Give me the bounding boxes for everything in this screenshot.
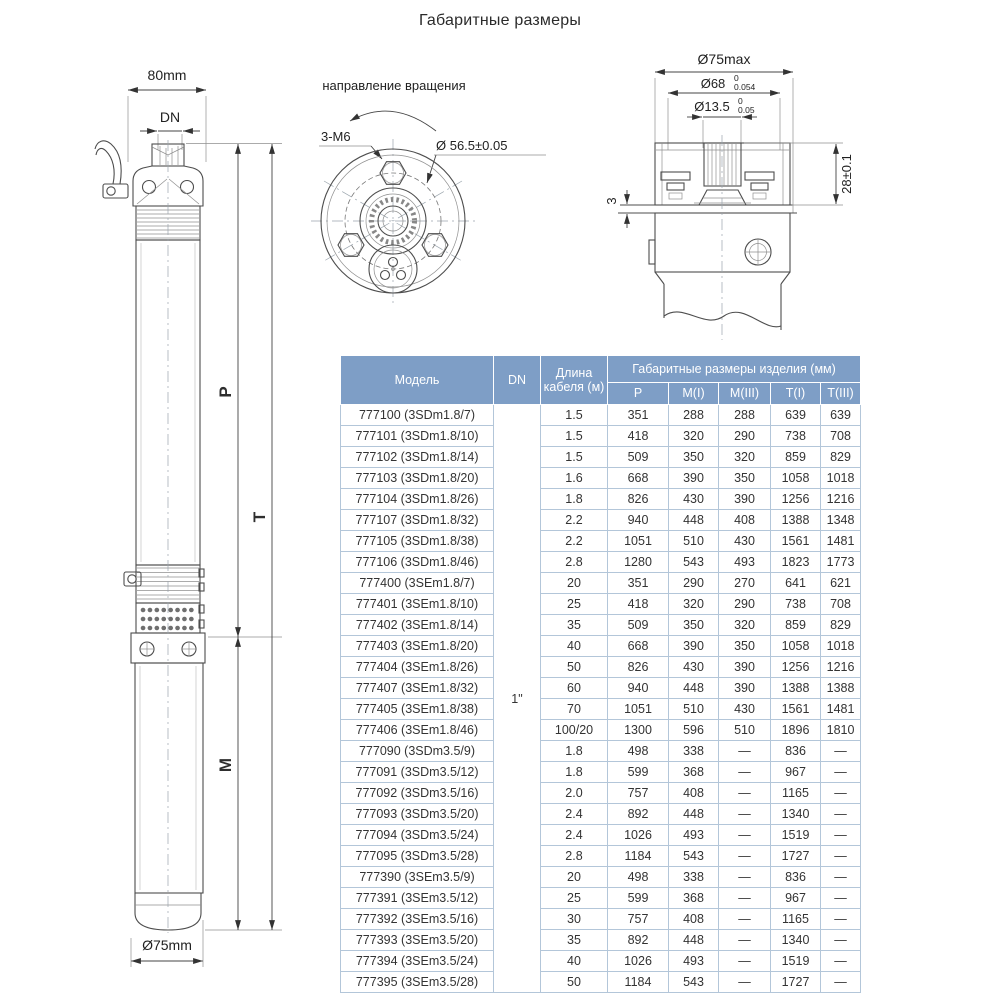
m1-cell: 493 [669, 951, 719, 972]
cable-length-cell: 2.2 [541, 510, 608, 531]
header-dn: DN [494, 356, 541, 405]
header-t1: T(I) [771, 383, 821, 405]
p-cell: 1051 [608, 531, 669, 552]
table-row: 777391 (3SEm3.5/12) 25 599 368 — 967 — [341, 888, 861, 909]
t3-cell: — [821, 888, 861, 909]
m3-cell: 390 [719, 678, 771, 699]
model-cell: 777406 (3SEm1.8/46) [341, 720, 494, 741]
table-row: 777094 (3SDm3.5/24) 2.4 1026 493 — 1519 … [341, 825, 861, 846]
t3-cell: 1018 [821, 636, 861, 657]
m1-cell: 430 [669, 489, 719, 510]
p-cell: 668 [608, 636, 669, 657]
cable-length-cell: 35 [541, 615, 608, 636]
dim-d68-tol-lower: 0.054 [734, 82, 756, 92]
m1-cell: 448 [669, 678, 719, 699]
p-cell: 509 [608, 447, 669, 468]
t1-cell: 859 [771, 447, 821, 468]
t1-cell: 1165 [771, 909, 821, 930]
t3-cell: 1388 [821, 678, 861, 699]
header-dimensions-group: Габаритные размеры изделия (мм) [608, 356, 861, 383]
m3-cell: 493 [719, 552, 771, 573]
t1-cell: 1058 [771, 468, 821, 489]
dimensions-table: Модель DN Длина кабеля (м) Габаритные ра… [340, 355, 861, 993]
table-row: 777394 (3SEm3.5/24) 40 1026 493 — 1519 — [341, 951, 861, 972]
t3-cell: 829 [821, 615, 861, 636]
cable-length-cell: 1.5 [541, 447, 608, 468]
m1-cell: 320 [669, 426, 719, 447]
m1-cell: 596 [669, 720, 719, 741]
model-cell: 777392 (3SEm3.5/16) [341, 909, 494, 930]
m3-cell: — [719, 741, 771, 762]
m3-cell: 430 [719, 531, 771, 552]
cable-length-cell: 2.0 [541, 783, 608, 804]
cable-length-cell: 30 [541, 909, 608, 930]
m1-cell: 350 [669, 615, 719, 636]
m3-cell: — [719, 972, 771, 993]
t3-cell: 1810 [821, 720, 861, 741]
t3-cell: — [821, 930, 861, 951]
t1-cell: 738 [771, 426, 821, 447]
t1-cell: 1896 [771, 720, 821, 741]
table-row: 777404 (3SEm1.8/26) 50 826 430 390 1256 … [341, 657, 861, 678]
cable-length-cell: 70 [541, 699, 608, 720]
m3-cell: — [719, 909, 771, 930]
model-cell: 777104 (3SDm1.8/26) [341, 489, 494, 510]
datasheet-page: Габаритные размеры 80mm DN [0, 0, 1000, 1000]
model-cell: 777405 (3SEm1.8/38) [341, 699, 494, 720]
table-row: 777390 (3SEm3.5/9) 20 498 338 — 836 — [341, 867, 861, 888]
cable-length-cell: 50 [541, 657, 608, 678]
m3-cell: — [719, 930, 771, 951]
table-row: 777103 (3SDm1.8/20) 1.6 668 390 350 1058… [341, 468, 861, 489]
t1-cell: 1519 [771, 951, 821, 972]
m3-cell: — [719, 762, 771, 783]
t3-cell: — [821, 783, 861, 804]
m1-cell: 350 [669, 447, 719, 468]
m1-cell: 288 [669, 405, 719, 426]
t3-cell: 708 [821, 426, 861, 447]
table-row: 777105 (3SDm1.8/38) 2.2 1051 510 430 156… [341, 531, 861, 552]
table-row: 777090 (3SDm3.5/9) 1.8 498 338 — 836 — [341, 741, 861, 762]
t1-cell: 639 [771, 405, 821, 426]
p-cell: 498 [608, 867, 669, 888]
pump-side-view: 80mm DN [95, 67, 282, 967]
m1-cell: 390 [669, 468, 719, 489]
m3-cell: — [719, 846, 771, 867]
model-cell: 777394 (3SEm3.5/24) [341, 951, 494, 972]
model-cell: 777105 (3SDm1.8/38) [341, 531, 494, 552]
flange-top-view: направление вращения 3-М6 Ø 56.5±0.05 [311, 78, 546, 303]
dim-d135-label: Ø13.5 [694, 99, 729, 114]
m3-cell: 290 [719, 426, 771, 447]
model-cell: 777102 (3SDm1.8/14) [341, 447, 494, 468]
model-cell: 777091 (3SDm3.5/12) [341, 762, 494, 783]
cable-length-cell: 25 [541, 888, 608, 909]
cable-length-cell: 20 [541, 573, 608, 594]
t1-cell: 738 [771, 594, 821, 615]
m3-cell: 290 [719, 594, 771, 615]
header-cable-length: Длина кабеля (м) [541, 356, 608, 405]
table-row: 777095 (3SDm3.5/28) 2.8 1184 543 — 1727 … [341, 846, 861, 867]
cable-length-cell: 2.8 [541, 552, 608, 573]
model-cell: 777101 (3SDm1.8/10) [341, 426, 494, 447]
cable-length-cell: 2.2 [541, 531, 608, 552]
t3-cell: 639 [821, 405, 861, 426]
p-cell: 757 [608, 909, 669, 930]
header-p: P [608, 383, 669, 405]
dim-p-label: P [216, 386, 235, 397]
p-cell: 599 [608, 888, 669, 909]
table-row: 777091 (3SDm3.5/12) 1.8 599 368 — 967 — [341, 762, 861, 783]
model-cell: 777403 (3SEm1.8/20) [341, 636, 494, 657]
p-cell: 757 [608, 783, 669, 804]
cable-length-cell: 2.4 [541, 825, 608, 846]
p-cell: 1184 [608, 972, 669, 993]
m3-cell: 390 [719, 489, 771, 510]
m1-cell: 290 [669, 573, 719, 594]
t1-cell: 1165 [771, 783, 821, 804]
table-row: 777405 (3SEm1.8/38) 70 1051 510 430 1561… [341, 699, 861, 720]
cable-length-cell: 1.8 [541, 489, 608, 510]
t1-cell: 836 [771, 741, 821, 762]
model-cell: 777093 (3SDm3.5/20) [341, 804, 494, 825]
bolt-circle-dim-label: Ø 56.5±0.05 [436, 138, 507, 153]
model-cell: 777400 (3SEm1.8/7) [341, 573, 494, 594]
t1-cell: 967 [771, 762, 821, 783]
model-cell: 777395 (3SEm3.5/28) [341, 972, 494, 993]
cable-length-cell: 1.6 [541, 468, 608, 489]
p-cell: 509 [608, 615, 669, 636]
header-model: Модель [341, 356, 494, 405]
t3-cell: 1773 [821, 552, 861, 573]
t1-cell: 1561 [771, 699, 821, 720]
m1-cell: 338 [669, 867, 719, 888]
t1-cell: 1561 [771, 531, 821, 552]
m3-cell: — [719, 867, 771, 888]
dim-d68-label: Ø68 [701, 76, 726, 91]
t1-cell: 1727 [771, 846, 821, 867]
m3-cell: 390 [719, 657, 771, 678]
table-row: 777395 (3SEm3.5/28) 50 1184 543 — 1727 — [341, 972, 861, 993]
p-cell: 1051 [608, 699, 669, 720]
table-row: 777100 (3SDm1.8/7) 1"1.5 351 288 288 639… [341, 405, 861, 426]
header-m3: M(III) [719, 383, 771, 405]
cable-length-cell: 40 [541, 636, 608, 657]
t3-cell: — [821, 867, 861, 888]
t1-cell: 641 [771, 573, 821, 594]
m1-cell: 368 [669, 888, 719, 909]
model-cell: 777092 (3SDm3.5/16) [341, 783, 494, 804]
dim-shaft-height-label: 28±0.1 [839, 154, 854, 194]
model-cell: 777390 (3SEm3.5/9) [341, 867, 494, 888]
table-row: 777403 (3SEm1.8/20) 40 668 390 350 1058 … [341, 636, 861, 657]
dim-max-diameter-label: Ø75max [698, 51, 751, 67]
p-cell: 599 [608, 762, 669, 783]
cable-length-cell: 1.8 [541, 741, 608, 762]
p-cell: 668 [608, 468, 669, 489]
t3-cell: 1481 [821, 699, 861, 720]
dim-bottom-diameter-label: Ø75mm [142, 937, 192, 953]
m1-cell: 448 [669, 930, 719, 951]
m3-cell: 510 [719, 720, 771, 741]
t3-cell: — [821, 951, 861, 972]
p-cell: 892 [608, 804, 669, 825]
m1-cell: 320 [669, 594, 719, 615]
p-cell: 826 [608, 489, 669, 510]
table-row: 777392 (3SEm3.5/16) 30 757 408 — 1165 — [341, 909, 861, 930]
t3-cell: — [821, 972, 861, 993]
t1-cell: 859 [771, 615, 821, 636]
m3-cell: 270 [719, 573, 771, 594]
table-row: 777406 (3SEm1.8/46) 100/20 1300 596 510 … [341, 720, 861, 741]
cable-length-cell: 20 [541, 867, 608, 888]
table-row: 777106 (3SDm1.8/46) 2.8 1280 543 493 182… [341, 552, 861, 573]
table-row: 777393 (3SEm3.5/20) 35 892 448 — 1340 — [341, 930, 861, 951]
t1-cell: 1058 [771, 636, 821, 657]
m1-cell: 543 [669, 552, 719, 573]
t1-cell: 1256 [771, 657, 821, 678]
m3-cell: — [719, 825, 771, 846]
m1-cell: 448 [669, 510, 719, 531]
cable-length-cell: 2.8 [541, 846, 608, 867]
p-cell: 418 [608, 594, 669, 615]
t3-cell: 621 [821, 573, 861, 594]
model-cell: 777407 (3SEm1.8/32) [341, 678, 494, 699]
t3-cell: — [821, 825, 861, 846]
cable-length-cell: 50 [541, 972, 608, 993]
cable-length-cell: 1.8 [541, 762, 608, 783]
m3-cell: 320 [719, 615, 771, 636]
table-row: 777101 (3SDm1.8/10) 1.5 418 320 290 738 … [341, 426, 861, 447]
t3-cell: 1216 [821, 489, 861, 510]
m1-cell: 510 [669, 699, 719, 720]
m1-cell: 448 [669, 804, 719, 825]
dim-t-label: T [250, 511, 269, 522]
dim-d135-tol-lower: 0.05 [738, 105, 755, 115]
m1-cell: 368 [669, 762, 719, 783]
cable-length-cell: 25 [541, 594, 608, 615]
m3-cell: — [719, 951, 771, 972]
cable-length-cell: 100/20 [541, 720, 608, 741]
table-row: 777102 (3SDm1.8/14) 1.5 509 350 320 859 … [341, 447, 861, 468]
p-cell: 1300 [608, 720, 669, 741]
p-cell: 498 [608, 741, 669, 762]
table-row: 777400 (3SEm1.8/7) 20 351 290 270 641 62… [341, 573, 861, 594]
header-m1: M(I) [669, 383, 719, 405]
t1-cell: 1823 [771, 552, 821, 573]
dim-top-width-label: 80mm [148, 67, 187, 83]
t3-cell: 708 [821, 594, 861, 615]
p-cell: 418 [608, 426, 669, 447]
p-cell: 1026 [608, 825, 669, 846]
p-cell: 351 [608, 573, 669, 594]
m1-cell: 408 [669, 783, 719, 804]
m1-cell: 408 [669, 909, 719, 930]
t1-cell: 1388 [771, 510, 821, 531]
m3-cell: 408 [719, 510, 771, 531]
t1-cell: 1727 [771, 972, 821, 993]
m1-cell: 390 [669, 636, 719, 657]
table-row: 777402 (3SEm1.8/14) 35 509 350 320 859 8… [341, 615, 861, 636]
m1-cell: 543 [669, 846, 719, 867]
m1-cell: 493 [669, 825, 719, 846]
t1-cell: 967 [771, 888, 821, 909]
model-cell: 777401 (3SEm1.8/10) [341, 594, 494, 615]
p-cell: 892 [608, 930, 669, 951]
t3-cell: — [821, 804, 861, 825]
model-cell: 777103 (3SDm1.8/20) [341, 468, 494, 489]
m3-cell: 320 [719, 447, 771, 468]
table-row: 777092 (3SDm3.5/16) 2.0 757 408 — 1165 — [341, 783, 861, 804]
m3-cell: 288 [719, 405, 771, 426]
t1-cell: 1519 [771, 825, 821, 846]
dim-m-label: M [216, 758, 235, 772]
m3-cell: 430 [719, 699, 771, 720]
t3-cell: 1481 [821, 531, 861, 552]
table-row: 777104 (3SDm1.8/26) 1.8 826 430 390 1256… [341, 489, 861, 510]
table-row: 777093 (3SDm3.5/20) 2.4 892 448 — 1340 — [341, 804, 861, 825]
model-cell: 777107 (3SDm1.8/32) [341, 510, 494, 531]
dim-dn-label: DN [160, 109, 180, 125]
model-cell: 777393 (3SEm3.5/20) [341, 930, 494, 951]
rotation-direction-label: направление вращения [322, 78, 465, 93]
model-cell: 777404 (3SEm1.8/26) [341, 657, 494, 678]
t3-cell: 1216 [821, 657, 861, 678]
m1-cell: 510 [669, 531, 719, 552]
cable-length-cell: 40 [541, 951, 608, 972]
t3-cell: 1348 [821, 510, 861, 531]
model-cell: 777095 (3SDm3.5/28) [341, 846, 494, 867]
t1-cell: 1340 [771, 930, 821, 951]
m3-cell: — [719, 804, 771, 825]
p-cell: 1280 [608, 552, 669, 573]
dim-gap-label: 3 [604, 197, 619, 204]
t3-cell: — [821, 846, 861, 867]
m3-cell: 350 [719, 468, 771, 489]
cable-length-cell: 2.4 [541, 804, 608, 825]
t3-cell: — [821, 762, 861, 783]
p-cell: 826 [608, 657, 669, 678]
p-cell: 1026 [608, 951, 669, 972]
t1-cell: 836 [771, 867, 821, 888]
motor-top-view: Ø75max Ø68 0 0.054 Ø13.5 0 0.05 [604, 51, 854, 340]
header-t3: T(III) [821, 383, 861, 405]
t3-cell: — [821, 741, 861, 762]
table-row: 777107 (3SDm1.8/32) 2.2 940 448 408 1388… [341, 510, 861, 531]
m1-cell: 430 [669, 657, 719, 678]
m3-cell: — [719, 783, 771, 804]
model-cell: 777100 (3SDm1.8/7) [341, 405, 494, 426]
table-row: 777407 (3SEm1.8/32) 60 940 448 390 1388 … [341, 678, 861, 699]
t1-cell: 1256 [771, 489, 821, 510]
m1-cell: 543 [669, 972, 719, 993]
model-cell: 777094 (3SDm3.5/24) [341, 825, 494, 846]
p-cell: 1184 [608, 846, 669, 867]
p-cell: 351 [608, 405, 669, 426]
t1-cell: 1388 [771, 678, 821, 699]
t3-cell: 1018 [821, 468, 861, 489]
cable-length-cell: 60 [541, 678, 608, 699]
p-cell: 940 [608, 510, 669, 531]
model-cell: 777106 (3SDm1.8/46) [341, 552, 494, 573]
m3-cell: 350 [719, 636, 771, 657]
t3-cell: 829 [821, 447, 861, 468]
model-cell: 777391 (3SEm3.5/12) [341, 888, 494, 909]
rotation-arrow [350, 111, 436, 131]
cable-length-cell: 1.5 [541, 405, 608, 426]
dn-merged-cell: 1" [494, 405, 541, 993]
m1-cell: 338 [669, 741, 719, 762]
thread-label: 3-М6 [321, 129, 351, 144]
cable-length-cell: 1.5 [541, 426, 608, 447]
p-cell: 940 [608, 678, 669, 699]
t3-cell: — [821, 909, 861, 930]
table-row: 777401 (3SEm1.8/10) 25 418 320 290 738 7… [341, 594, 861, 615]
cable-length-cell: 35 [541, 930, 608, 951]
t1-cell: 1340 [771, 804, 821, 825]
model-cell: 777090 (3SDm3.5/9) [341, 741, 494, 762]
model-cell: 777402 (3SEm1.8/14) [341, 615, 494, 636]
m3-cell: — [719, 888, 771, 909]
